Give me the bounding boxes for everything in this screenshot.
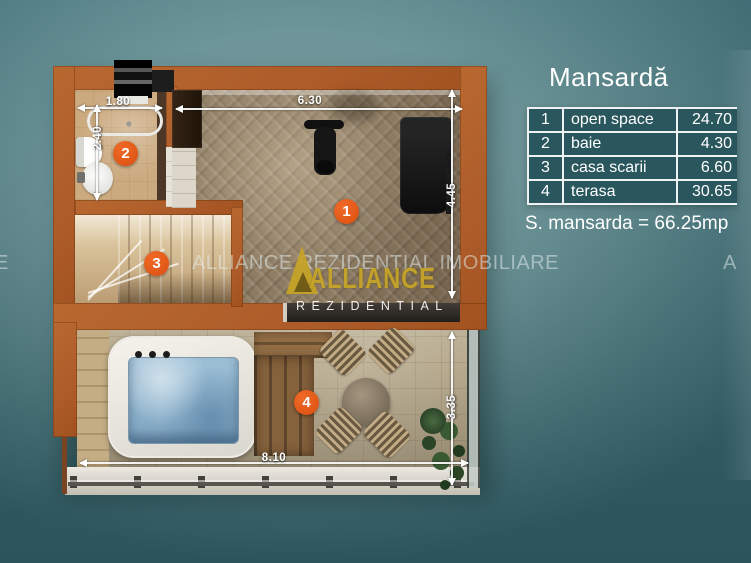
terrace-tile-strip bbox=[77, 330, 109, 467]
jet-dot bbox=[163, 351, 170, 358]
wall-terrace-left bbox=[53, 322, 77, 437]
wall-left bbox=[53, 66, 75, 322]
dim-label-terrace-width: 8.10 bbox=[252, 452, 296, 464]
page-title: Mansardă bbox=[549, 62, 669, 93]
room-area-cell: 24.70 bbox=[678, 109, 737, 131]
wall-terrace-left-thin bbox=[62, 437, 67, 494]
arrow-icon bbox=[93, 104, 101, 112]
room-name-cell: terasa bbox=[564, 181, 676, 203]
room-name-cell: baie bbox=[564, 133, 676, 155]
white-cabinet bbox=[172, 148, 196, 208]
room-name-cell: casa scarii bbox=[564, 157, 676, 179]
dim-label-bathroom-height: 2.40 bbox=[90, 118, 106, 158]
jacuzzi-water bbox=[128, 357, 239, 444]
railing-bar bbox=[68, 482, 474, 486]
jet-dot bbox=[135, 351, 142, 358]
arrow-icon bbox=[155, 104, 163, 112]
arrow-icon bbox=[448, 89, 456, 97]
terrace-door-frame bbox=[283, 303, 287, 322]
room-area-cell: 4.30 bbox=[678, 133, 737, 155]
arrow-icon bbox=[79, 459, 87, 467]
room-name-cell: open space bbox=[564, 109, 676, 131]
arrow-icon bbox=[77, 104, 85, 112]
room-marker-open-space: 1 bbox=[334, 199, 359, 224]
skylight bbox=[114, 60, 152, 98]
watermark-fragment-right: A bbox=[723, 252, 737, 275]
area-summary: S. mansarda = 66.25mp bbox=[525, 213, 728, 235]
alliance-logo-subtext: REZIDENTIAL bbox=[296, 299, 449, 313]
rooms-table: 1 open space 24.70 2 baie 4.30 3 casa sc… bbox=[527, 107, 737, 205]
watermark-fragment-left: E bbox=[0, 252, 9, 275]
room-marker-bathroom: 2 bbox=[113, 141, 138, 166]
room-area-cell: 30.65 bbox=[678, 181, 737, 203]
dim-label-openspace-height: 4.45 bbox=[444, 172, 460, 218]
screenshot-root: 1.80 2.40 6.30 4.45 3.35 8.10 1 2 3 4 AL… bbox=[0, 0, 751, 563]
room-area-cell: 6.60 bbox=[678, 157, 737, 179]
arrow-icon bbox=[448, 331, 456, 339]
arrow-icon bbox=[93, 193, 101, 201]
room-marker-terrace: 4 bbox=[294, 390, 319, 415]
arrow-icon bbox=[448, 478, 456, 486]
dim-label-openspace-width: 6.30 bbox=[288, 95, 332, 107]
sink-faucet bbox=[77, 172, 85, 183]
floor-shadow bbox=[330, 92, 378, 122]
closet-top bbox=[152, 70, 174, 92]
room-number-cell: 3 bbox=[529, 157, 562, 179]
wall-right bbox=[460, 66, 487, 330]
jet-dot bbox=[149, 351, 156, 358]
dim-label-bathroom-width: 1.80 bbox=[98, 96, 138, 108]
arrow-icon bbox=[448, 291, 456, 299]
exercise-bike-seat bbox=[316, 160, 334, 174]
plant bbox=[420, 408, 446, 434]
room-number-cell: 1 bbox=[529, 109, 562, 131]
dim-line-openspace-width bbox=[176, 108, 462, 110]
wardrobe bbox=[172, 90, 202, 148]
room-number-cell: 2 bbox=[529, 133, 562, 155]
jacuzzi-jets bbox=[135, 345, 185, 355]
arrow-icon bbox=[455, 105, 463, 113]
alliance-logo-text: ALLIANCE bbox=[309, 263, 436, 296]
dim-label-terrace-height: 3.35 bbox=[444, 384, 460, 430]
arrow-icon bbox=[175, 105, 183, 113]
arrow-icon bbox=[461, 459, 469, 467]
room-number-cell: 4 bbox=[529, 181, 562, 203]
wall-bath-bottom bbox=[75, 200, 243, 215]
